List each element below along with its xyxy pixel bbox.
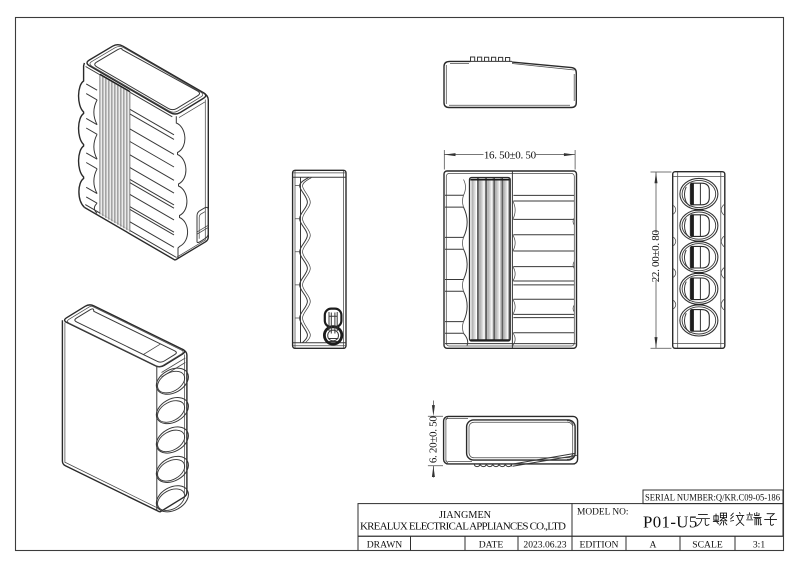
svg-text:DRAWN: DRAWN <box>367 540 403 551</box>
svg-text:EDITION: EDITION <box>580 540 619 551</box>
svg-text:3:1: 3:1 <box>753 540 765 551</box>
svg-text:22. 00±0. 80: 22. 00±0. 80 <box>650 230 662 283</box>
svg-text:SCALE: SCALE <box>692 540 723 551</box>
svg-text:A: A <box>650 540 657 551</box>
svg-text:6. 20±0. 50: 6. 20±0. 50 <box>427 416 439 464</box>
svg-text:DATE: DATE <box>479 540 504 551</box>
svg-text:JIANGMEN: JIANGMEN <box>439 510 492 521</box>
svg-text:2023.06.23: 2023.06.23 <box>523 540 566 551</box>
svg-text:P01-U5: P01-U5 <box>643 513 698 532</box>
svg-text:KREALUX ELECTRICAL APPLIANCES: KREALUX ELECTRICAL APPLIANCES CO.,LTD <box>360 521 566 533</box>
svg-text:16. 50±0. 50: 16. 50±0. 50 <box>484 150 537 162</box>
svg-text:SERIAL NUMBER:Q/KR.C09-05-186: SERIAL NUMBER:Q/KR.C09-05-186 <box>645 493 780 503</box>
svg-text:MODEL NO:: MODEL NO: <box>577 507 628 517</box>
